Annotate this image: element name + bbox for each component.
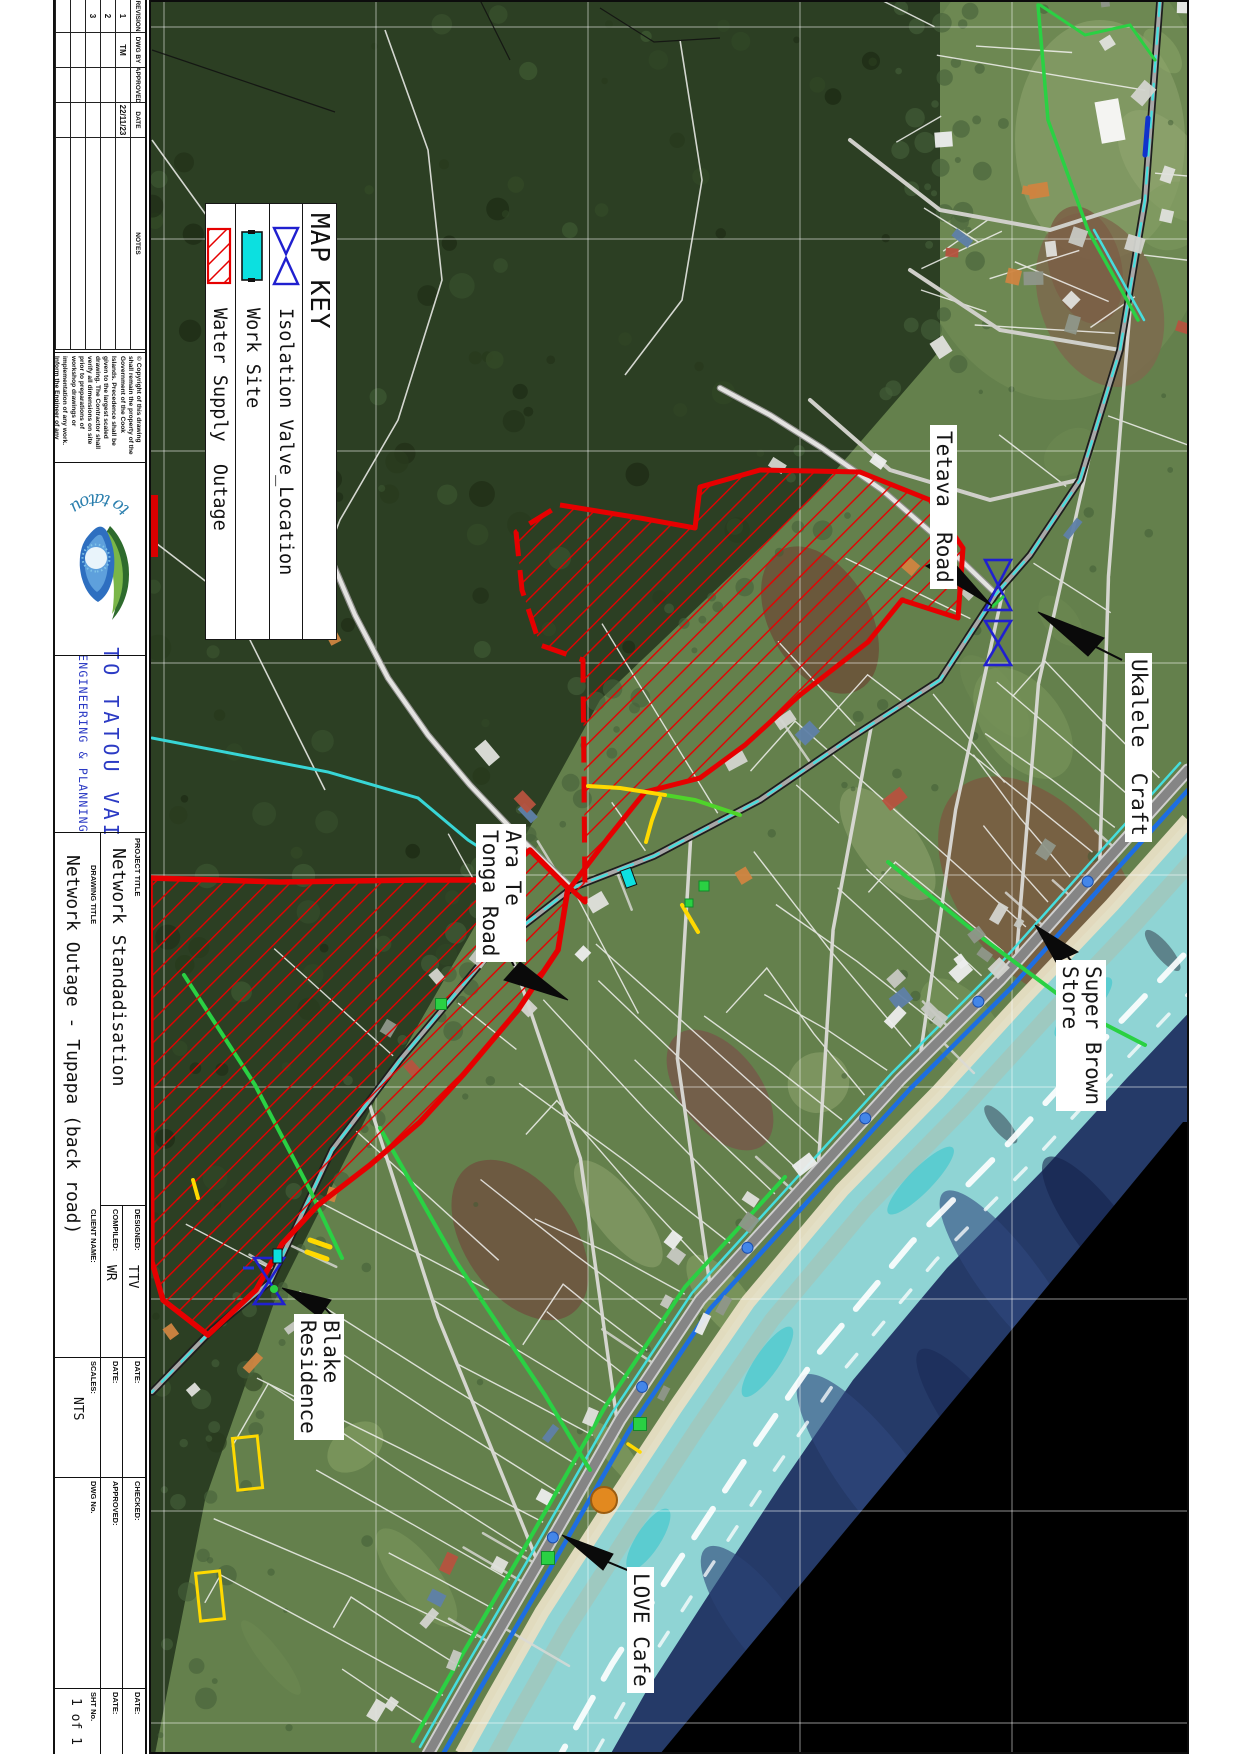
- legend-item-work-site: Work Site: [235, 204, 268, 639]
- copyright-notice: © Copyright of this drawing shall remain…: [55, 352, 145, 460]
- legend-item-water-supply-outage: Water Supply Outage: [203, 204, 235, 639]
- date-label-1: DATE:: [133, 1361, 142, 1383]
- work-site-symbol: [273, 1249, 282, 1263]
- map-label-text: Tonga Road: [478, 830, 502, 956]
- project-title-label: PROJECT TITLE: [133, 838, 142, 896]
- water-supply-outage-icon: [204, 204, 234, 308]
- legend-item-isolation-valve: Isolation Valve_Location: [269, 204, 302, 639]
- orange-marker: [591, 1487, 617, 1513]
- date-label-3: DATE:: [133, 1692, 142, 1714]
- designed-value: TTV: [125, 1265, 140, 1288]
- pipe-marker: [699, 881, 709, 891]
- fitting-dot: [973, 996, 984, 1007]
- revision-cell: [70, 103, 85, 138]
- revision-cell: [100, 33, 115, 68]
- date-label-2: DATE:: [111, 1361, 120, 1383]
- revision-cell: [100, 138, 115, 350]
- revision-cell: TM: [115, 33, 130, 68]
- legend-label: Isolation Valve_Location: [275, 308, 296, 575]
- revision-cell: DATE: [130, 103, 145, 138]
- revision-cell: [70, 0, 85, 33]
- date-label-4: DATE:: [111, 1692, 120, 1714]
- dwg-no-label: DWG No.: [89, 1481, 98, 1514]
- revision-cell: [115, 68, 130, 103]
- revision-cell: [55, 68, 70, 103]
- revision-cell: 1: [115, 0, 130, 33]
- revision-cell: 3: [85, 0, 100, 33]
- revision-cell: [115, 138, 130, 350]
- scales-value: NTS: [70, 1397, 85, 1420]
- revision-cell: [85, 103, 100, 138]
- revision-cell: [55, 138, 70, 350]
- company-line1: TO TATOU VAI: [100, 647, 124, 840]
- company-logo: to tatou vai: [55, 462, 145, 655]
- fitting-dot: [860, 1113, 871, 1124]
- logo-script-text: to tatou vai: [62, 474, 144, 520]
- company-line2: ENGINEERING & PLANNING: [77, 654, 91, 833]
- revision-cell: 2: [100, 0, 115, 33]
- map-label-love-cafe: LOVE Cafe: [627, 1567, 654, 1693]
- map-label-tetava-road: Tetava Road: [930, 425, 957, 589]
- client-name-label: CLIENT NAME:: [89, 1209, 98, 1263]
- satellite-map-image: [0, 0, 1240, 1754]
- fitting-dot: [1082, 876, 1093, 887]
- map-label-text: Tetava Road: [932, 431, 956, 583]
- map-label-text: LOVE Cafe: [629, 1573, 653, 1687]
- map-label-text: Ara Te: [501, 830, 525, 906]
- landscape-drawing: Tetava Road Ukalele Craft Ara TeTonga Ro…: [0, 0, 1240, 1754]
- revision-cell: APPROVED: [130, 68, 145, 103]
- revision-cell: [70, 138, 85, 350]
- revision-cell: [85, 33, 100, 68]
- work-site-icon: [237, 204, 267, 308]
- pipe-marker: [634, 1418, 647, 1431]
- fitting-dot: [547, 1532, 558, 1543]
- map-label-blake-residence: BlakeResidence: [294, 1314, 344, 1440]
- legend-label: Work Site: [242, 308, 263, 408]
- revision-cell: NOTES: [130, 138, 145, 350]
- revision-cell: [55, 0, 70, 33]
- revision-cell: DWG BY: [130, 33, 145, 68]
- compiled-value: WR: [103, 1265, 118, 1281]
- legend-title: MAP KEY: [302, 204, 336, 639]
- drawing-title-label: DRAWING TITLE: [89, 865, 98, 924]
- fitting-dot: [742, 1242, 753, 1253]
- compiled-label: COMPILED:: [111, 1209, 120, 1251]
- revision-cell: REVISION: [130, 0, 145, 33]
- isolation-valve-icon: [271, 204, 301, 308]
- revision-cell: [85, 68, 100, 103]
- pipe-marker: [542, 1552, 555, 1565]
- revision-cell: [100, 68, 115, 103]
- map-label-super-brown-store: Super BrownStore: [1056, 960, 1106, 1111]
- legend-label: Water Supply Outage: [209, 308, 230, 531]
- revision-cell: [85, 138, 100, 350]
- company-name: TO TATOU VAI ENGINEERING & PLANNING: [55, 655, 145, 832]
- pipe-marker: [436, 999, 447, 1010]
- pipe-marker: [685, 899, 693, 907]
- fitting-dot: [637, 1381, 648, 1392]
- map-label-text: Ukalele Craft: [1127, 659, 1151, 836]
- map-label-text: Store: [1058, 966, 1082, 1029]
- revision-cell: [55, 103, 70, 138]
- checked-label: CHECKED:: [133, 1481, 142, 1521]
- drawing-sheet: Tetava Road Ukalele Craft Ara TeTonga Ro…: [0, 0, 1240, 1754]
- revision-cell: 22/11/23: [115, 103, 130, 138]
- revision-cell: [70, 68, 85, 103]
- sht-no-label: SHT No.: [89, 1692, 98, 1721]
- map-label-text: Residence: [296, 1320, 320, 1434]
- map-label-text: Super Brown: [1081, 966, 1105, 1105]
- designed-label: DESIGNED:: [133, 1209, 142, 1251]
- drawing-title: Network Outage - Tupapa (back road): [62, 855, 83, 1234]
- map-label-ukalele-craft: Ukalele Craft: [1125, 653, 1152, 842]
- revision-cell: [55, 33, 70, 68]
- map-label-ara-te-tonga-road: Ara TeTonga Road: [476, 824, 526, 962]
- revision-cell: [100, 103, 115, 138]
- scales-label: SCALES:: [89, 1361, 98, 1394]
- map-label-text: Blake: [319, 1320, 343, 1383]
- approved-label: APPROVED:: [111, 1481, 120, 1526]
- revision-table: REVISION123DWG BYTMAPPROVEDDATE22/11/23N…: [55, 0, 145, 352]
- title-block: REVISION123DWG BYTMAPPROVEDDATE22/11/23N…: [53, 0, 147, 1754]
- sht-no-value: 1 of 1: [68, 1698, 83, 1745]
- project-title: Network Standadisation: [108, 848, 129, 1086]
- map-key-legend: MAP KEY Isolation Valve_Location Work Si…: [205, 203, 337, 640]
- revision-cell: [70, 33, 85, 68]
